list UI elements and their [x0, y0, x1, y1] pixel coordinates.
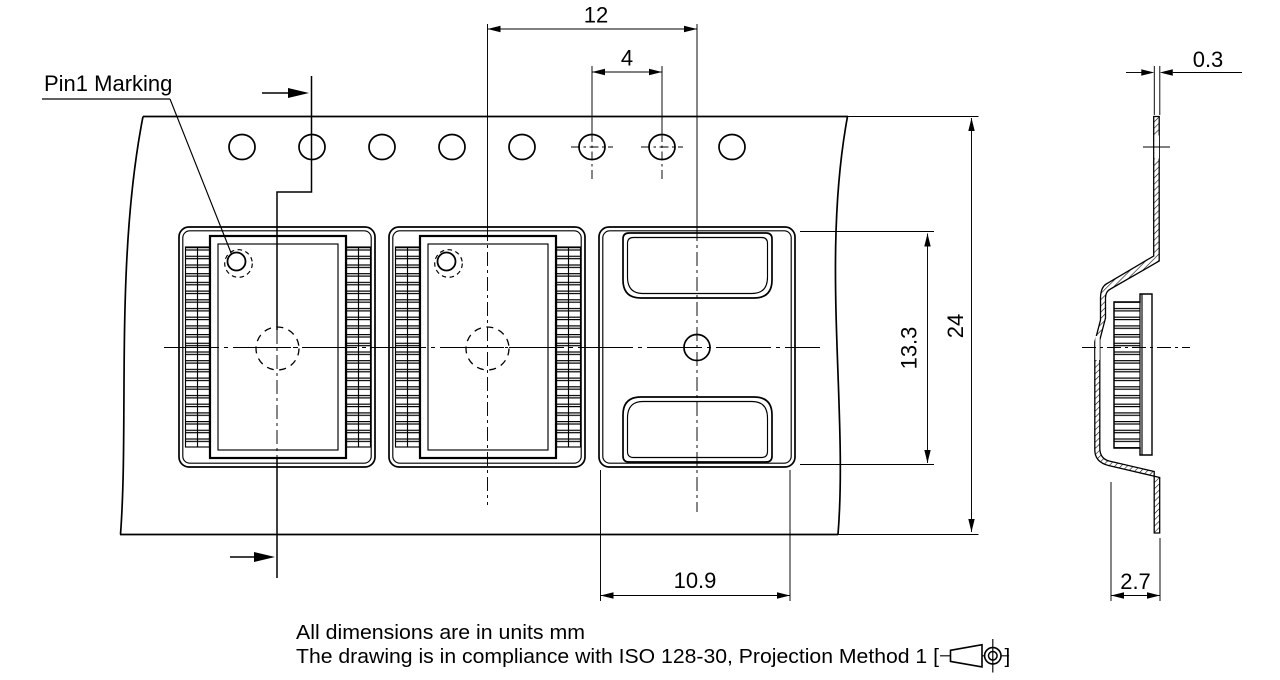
tape-break-line-left [121, 117, 144, 535]
svg-text:13.3: 13.3 [897, 327, 922, 370]
note-units: All dimensions are in units mm [296, 621, 585, 644]
dimension-hole-pitch-4: 4 [571, 46, 683, 181]
svg-text:24: 24 [943, 314, 968, 338]
technical-drawing-canvas: Pin1 Marking 12 4 24 13.3 [0, 0, 1280, 680]
pin1-marking-label: Pin1 Marking [44, 71, 172, 96]
note-iso-compliance: The drawing is in compliance with ISO 12… [296, 645, 939, 668]
svg-text:4: 4 [621, 46, 633, 71]
note-closing-bracket: ] [1005, 645, 1011, 668]
drawing-notes: All dimensions are in units mm The drawi… [296, 621, 1010, 673]
dimension-tape-thickness-0.3: 0.3 [1126, 47, 1242, 115]
dimension-pocket-width-10.9: 10.9 [601, 470, 791, 601]
dimension-pocket-length-13.3: 13.3 [800, 232, 934, 465]
section-arrow-bottom [254, 552, 275, 562]
dimension-tape-width-24: 24 [943, 118, 975, 532]
package-1 [186, 236, 371, 458]
package-leads-side [1114, 302, 1140, 448]
svg-text:2.7: 2.7 [1120, 569, 1151, 594]
section-arrow-top [288, 88, 309, 98]
first-angle-projection-icon [940, 639, 1009, 673]
tape-section-side-view: 0.3 2.7 [1082, 47, 1242, 601]
carrier-tape-front-view: Pin1 Marking [42, 24, 979, 578]
tape-break-line-right [835, 117, 847, 535]
dimension-pocket-pitch-12: 12 [488, 3, 698, 33]
package-2 [396, 236, 581, 458]
svg-text:10.9: 10.9 [674, 568, 717, 593]
carrier-tape-drawing-page: Pin1 Marking 12 4 24 13.3 [0, 0, 1280, 680]
svg-text:12: 12 [584, 3, 608, 28]
dimension-pocket-depth-2.7: 2.7 [1111, 482, 1160, 601]
svg-text:0.3: 0.3 [1193, 47, 1224, 72]
